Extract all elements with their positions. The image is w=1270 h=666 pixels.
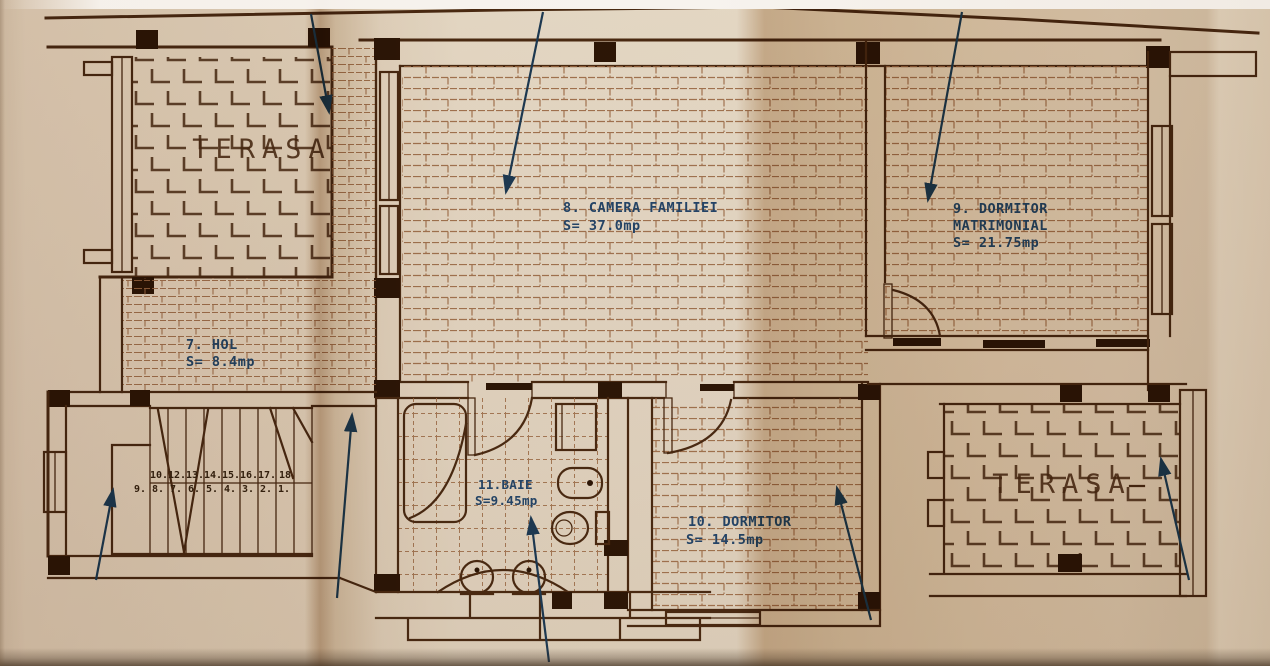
column-pillar: [1060, 385, 1082, 402]
stair-step-number: 15.: [222, 470, 240, 481]
terrace-rail-tab: [84, 250, 112, 263]
stair-step-number: 13.: [186, 470, 204, 481]
column-pillar: [374, 574, 400, 591]
terrace-rail-tab: [928, 452, 944, 478]
stair-step-number: 9.: [134, 484, 146, 495]
bedroom-10-area: S= 14.5mp: [686, 532, 764, 548]
column-pillar: [48, 556, 70, 575]
floor-plan-photo: TERASA: [0, 0, 1270, 666]
terrace-bottom-right: TERASA: [868, 384, 1206, 596]
column-pillar: [594, 42, 616, 62]
bathroom: 11.BAIE S=9.45mp: [374, 398, 628, 594]
column-pillar: [858, 384, 880, 400]
master-bedroom-label: 9. DORMITOR: [953, 201, 1048, 217]
column-pillar: [374, 380, 400, 398]
column-pillar: [1058, 554, 1082, 572]
stair-step-number: 3.: [242, 484, 254, 495]
column-pillar: [856, 42, 880, 64]
stair-step-number: 5.: [206, 484, 218, 495]
terrace-rail-tab: [84, 62, 112, 75]
family-room: 8. CAMERA FAMILIEI S= 37.0mp: [374, 38, 868, 398]
door-lintel: [700, 384, 734, 391]
column-pillar: [374, 38, 400, 60]
stair-step-number: 2.: [260, 484, 272, 495]
stair-step-number: 10.: [150, 470, 168, 481]
arrow-hall-wall: [337, 415, 352, 598]
stair-step-number: 14.: [204, 470, 222, 481]
arrow-stair-landing: [96, 490, 113, 580]
column-pillar: [374, 278, 400, 298]
column-pillar: [136, 30, 158, 49]
terrace-top-left: TERASA: [48, 28, 332, 294]
stair-step-number: 12.: [168, 470, 186, 481]
hall-area: S= 8.4mp: [186, 354, 255, 370]
stair-step-number: 1.: [278, 484, 290, 495]
column-pillar: [552, 592, 572, 609]
column-pillar: [604, 540, 628, 556]
master-bedroom-label2: MATRIMONIAL: [953, 218, 1048, 234]
wall-stub: [1170, 52, 1256, 76]
bathroom-label: 11.BAIE: [478, 477, 533, 492]
master-bedroom: 9. DORMITOR MATRIMONIAL S= 21.75mp: [866, 40, 1256, 390]
bathroom-area: S=9.45mp: [475, 493, 538, 508]
bedroom-10-label: 10. DORMITOR: [688, 514, 792, 530]
staircase: 10. 12. 13. 14. 15. 16. 17. 18 9. 8. 7. …: [44, 390, 376, 592]
column-pillar: [48, 390, 70, 407]
column-pillar: [858, 592, 880, 609]
master-bedroom-area: S= 21.75mp: [953, 235, 1039, 251]
door-lintel: [486, 383, 532, 390]
wall-fill: [893, 338, 941, 346]
terrace-top-label: TERASA: [192, 134, 332, 165]
terrace-rail-tab: [928, 500, 944, 526]
stair-step-number: 8.: [152, 484, 164, 495]
terrace-bottom-label: TERASA: [992, 469, 1132, 500]
hall-label: 7. HOL: [186, 337, 238, 353]
bidet-drain: [587, 480, 593, 486]
stair-step-number: 7.: [170, 484, 182, 495]
stair-step-number: 16.: [240, 470, 258, 481]
sink-faucet: [527, 568, 532, 573]
wall-fill: [1096, 339, 1150, 347]
family-room-area: S= 37.0mp: [563, 218, 641, 234]
floor-plan-drawing: TERASA: [0, 0, 1270, 666]
hall: 7. HOL S= 8.4mp: [100, 277, 376, 392]
column-pillar: [1148, 385, 1170, 402]
stair-step-number: 4.: [224, 484, 236, 495]
column-pillar: [1146, 46, 1170, 68]
column-pillar: [130, 390, 150, 406]
column-pillar: [604, 592, 628, 609]
family-room-label: 8. CAMERA FAMILIEI: [563, 200, 718, 216]
stair-step-number: 18: [279, 470, 291, 481]
column-pillar: [598, 382, 622, 398]
stair-step-number: 6.: [188, 484, 200, 495]
column-pillar: [308, 28, 330, 47]
exterior-wall-strip: [332, 47, 376, 277]
stair-step-number: 17.: [258, 470, 276, 481]
roof-eave-line: [46, 7, 1258, 33]
top-exterior-wall: [360, 40, 1170, 68]
wall-fill: [983, 340, 1045, 348]
sink-faucet: [475, 568, 480, 573]
